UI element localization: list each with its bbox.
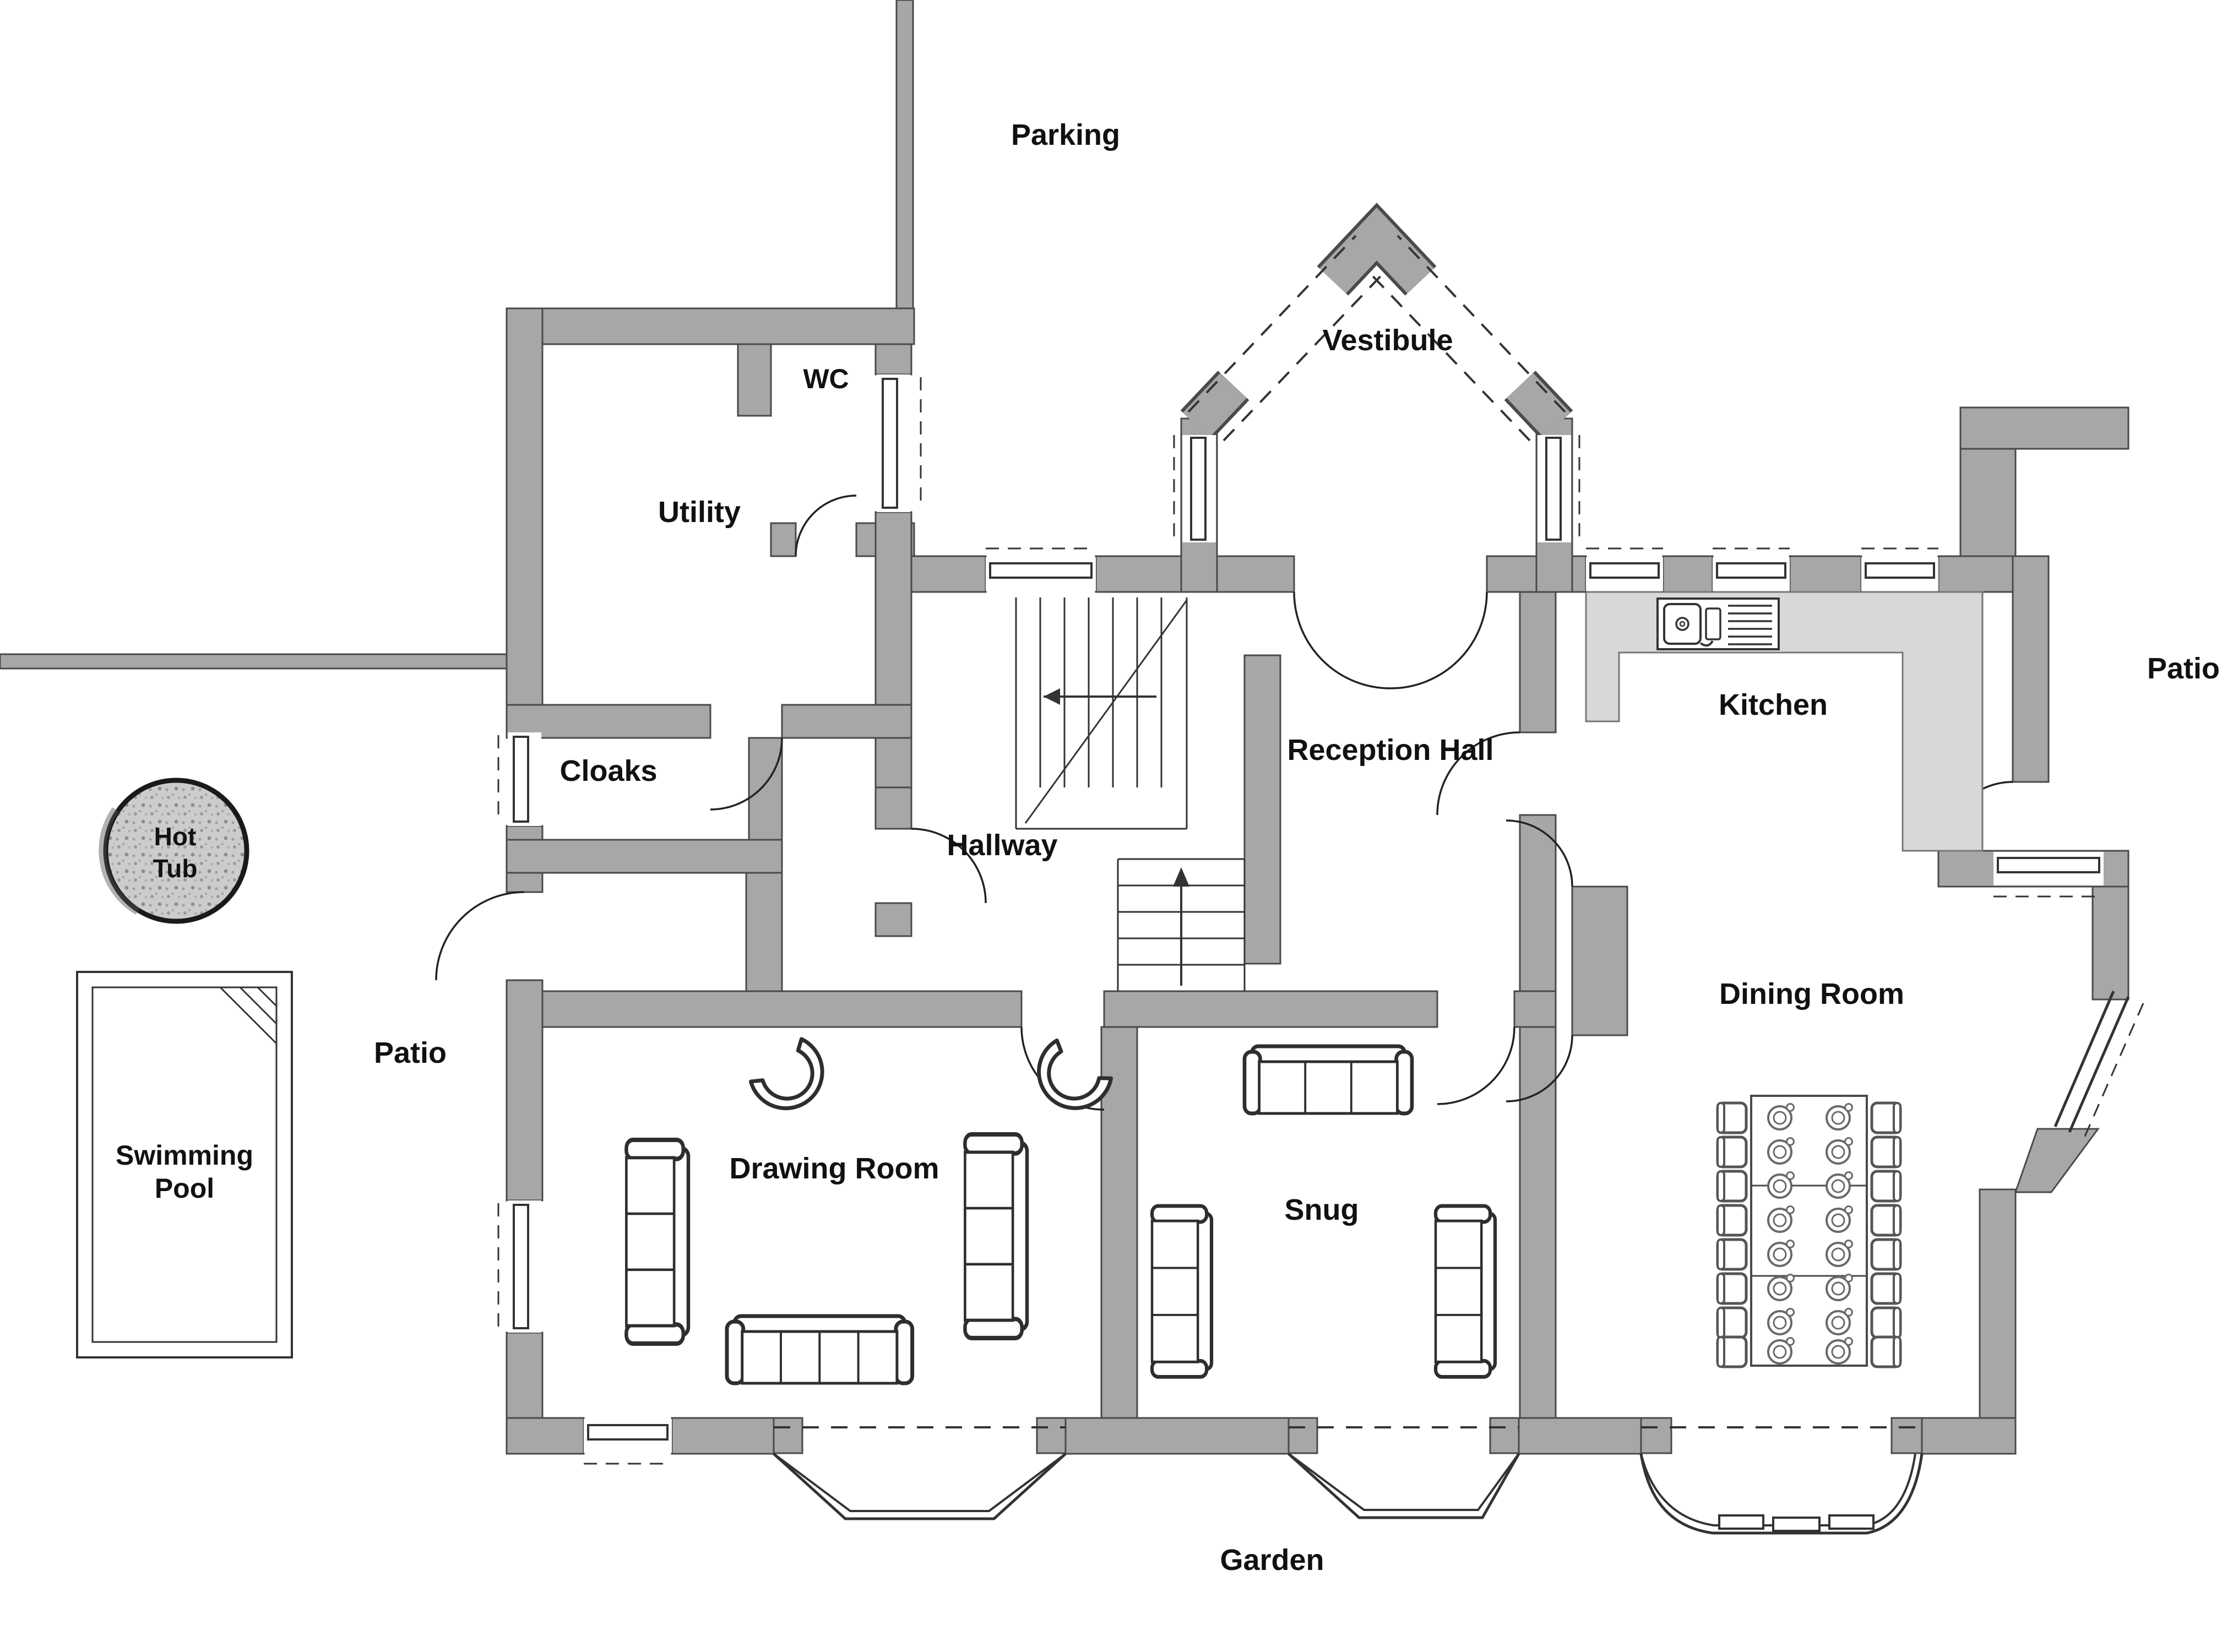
drawing-room-window-bottom (584, 1419, 672, 1464)
hallway-window (986, 548, 1096, 591)
staircase (1016, 597, 1245, 991)
patio-door-left (436, 892, 524, 980)
snug-bay-window (1289, 1427, 1519, 1518)
vestibule-window-left (1174, 435, 1216, 542)
cloaks-window (498, 732, 541, 826)
label-patio-left: Patio (374, 1036, 447, 1069)
label-kitchen: Kitchen (1719, 688, 1828, 721)
stairs-upper-flight (1016, 597, 1187, 829)
label-swimming-pool-1: Swimming (116, 1140, 253, 1171)
label-patio-right: Patio (2147, 652, 2220, 685)
floor-plan: Parking Vestibule WC Utility Cloaks Hall… (0, 0, 2222, 1652)
stairs-arrow-left (1044, 688, 1060, 705)
kitchen-sink-unit (1658, 599, 1779, 649)
label-cloaks: Cloaks (559, 754, 657, 787)
label-parking: Parking (1011, 118, 1120, 151)
label-snug: Snug (1285, 1193, 1359, 1226)
drawing-room-sofa-bottom (727, 1316, 912, 1383)
dining-chairs-left (1718, 1103, 1746, 1367)
wc-door (796, 496, 856, 556)
label-drawing-room: Drawing Room (729, 1152, 939, 1185)
kitchen-window-1 (1586, 548, 1663, 591)
drawing-room-sofa-right (965, 1134, 1027, 1338)
vestibule-door-right-leaf (1390, 592, 1487, 688)
floor-plan-svg: Parking Vestibule WC Utility Cloaks Hall… (0, 0, 2222, 1652)
boundary-wall-left (0, 654, 507, 669)
drawing-room-sofa-left (626, 1140, 688, 1344)
snug-sofa-left (1152, 1206, 1211, 1377)
label-swimming-pool-2: Pool (155, 1173, 214, 1204)
snug-sofa-right (1436, 1206, 1495, 1377)
boundary-wall-top (897, 0, 913, 308)
label-hot-tub-1: Hot (154, 822, 197, 851)
label-utility: Utility (658, 496, 741, 529)
stairs-arrow-up (1173, 867, 1189, 887)
stairs-lower-flight (1118, 859, 1245, 991)
snug-sofa-top (1245, 1046, 1412, 1113)
label-garden: Garden (1220, 1544, 1324, 1577)
drawing-room-window-left (498, 1200, 541, 1333)
label-reception-hall: Reception Hall (1287, 733, 1493, 767)
vestibule-window-right (1538, 435, 1579, 542)
patio-window (1993, 852, 2104, 896)
wc-window (877, 374, 921, 512)
dining-room-bay-window (1641, 1427, 1922, 1533)
vestibule-door-left-leaf (1294, 592, 1390, 688)
furniture (626, 1037, 1900, 1383)
drawing-room-bay-window (774, 1427, 1066, 1519)
patio-top-wall (1960, 407, 2128, 449)
kitchen-window-3 (1861, 548, 1938, 591)
bay-windows (774, 1427, 1922, 1533)
label-vestibule: Vestibule (1322, 324, 1453, 357)
kitchen-counter (1586, 592, 1982, 851)
drawing-room-armchair-1 (748, 1037, 837, 1123)
dining-chairs-right (1872, 1103, 1900, 1367)
label-dining-room: Dining Room (1719, 977, 1904, 1010)
dining-diagonal-window (2055, 991, 2143, 1139)
label-hot-tub-2: Tub (153, 854, 198, 883)
dining-entry-pillar (1572, 887, 1627, 1035)
dining-wall-elbow (2015, 1129, 2098, 1192)
hot-tub (102, 780, 247, 921)
kitchen-window-2 (1713, 548, 1790, 591)
label-hallway: Hallway (947, 829, 1057, 862)
label-wc: WC (803, 363, 849, 394)
dining-table (1718, 1096, 1900, 1367)
snug-door (1437, 1027, 1514, 1104)
